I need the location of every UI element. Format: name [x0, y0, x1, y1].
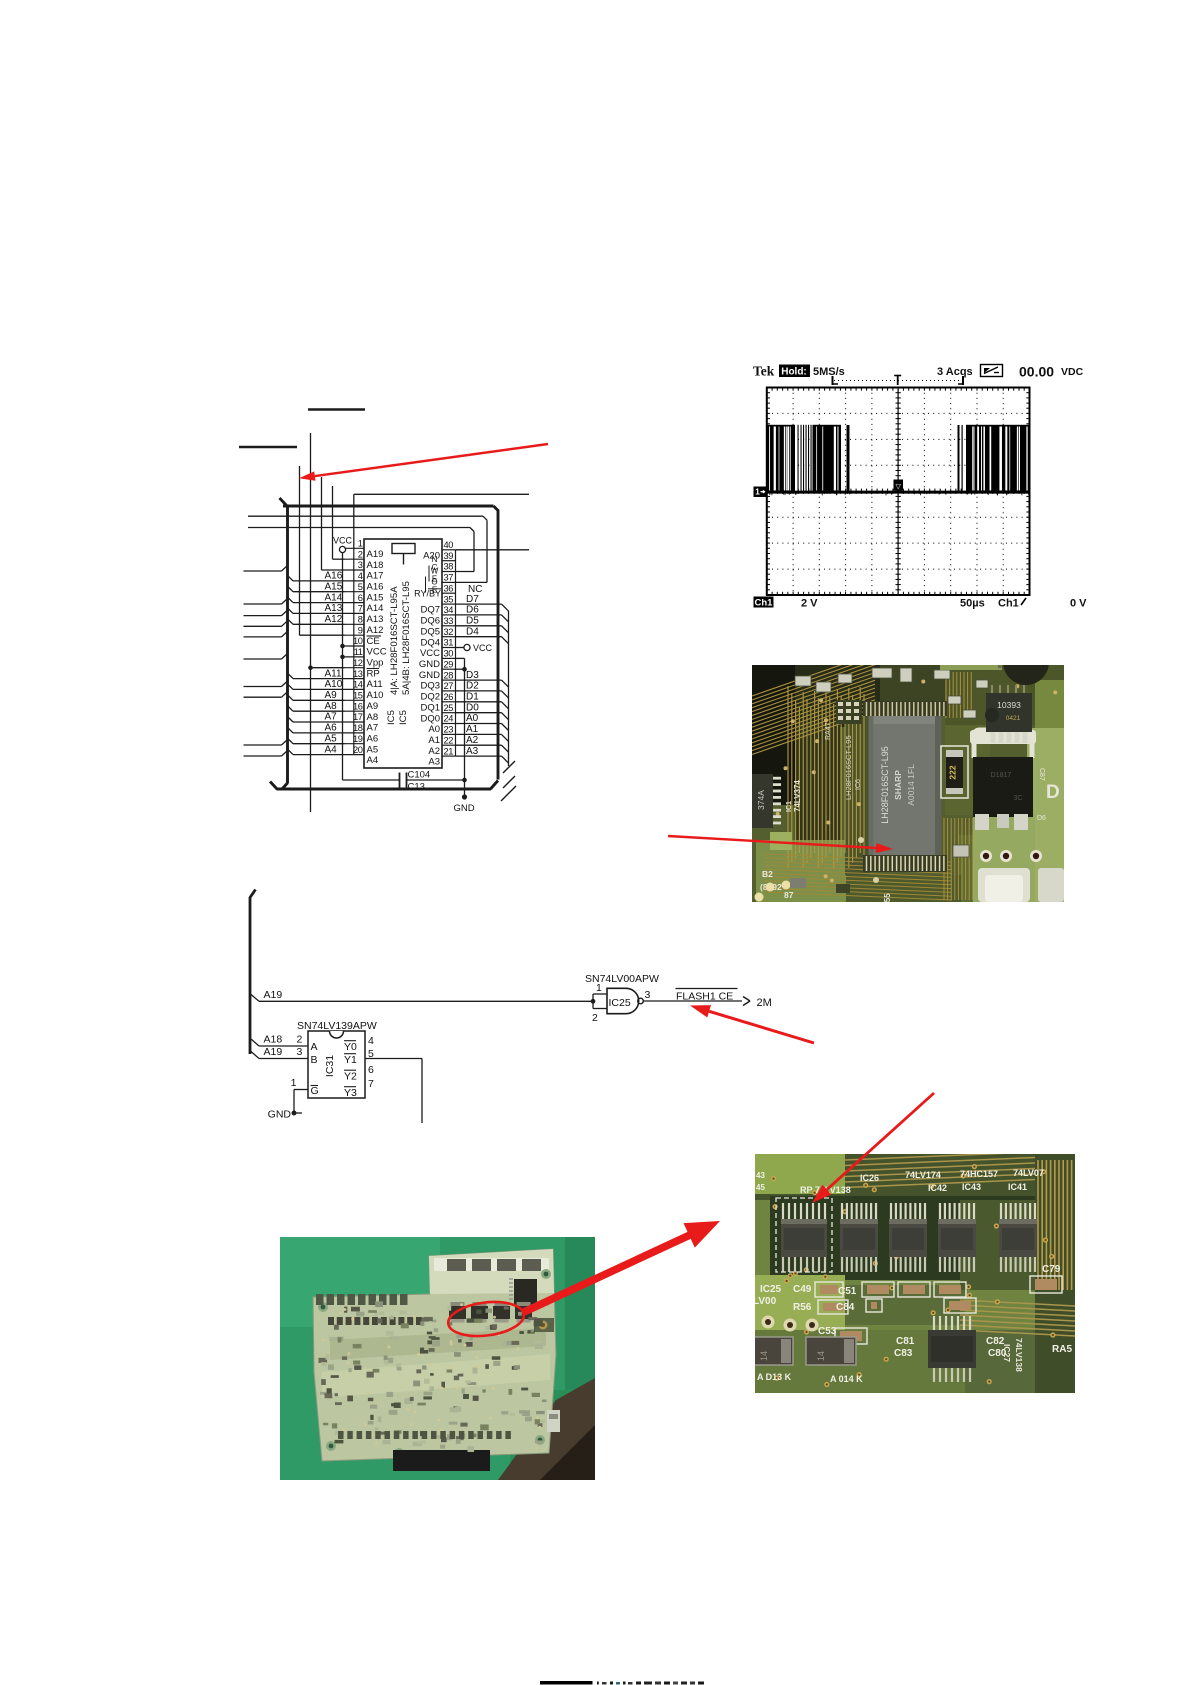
- svg-text:A9: A9: [325, 690, 338, 701]
- svg-text:4|A: LH28F016SCT-L95A: 4|A: LH28F016SCT-L95A: [389, 586, 400, 695]
- svg-text:VCC: VCC: [473, 643, 493, 653]
- svg-text:6: 6: [368, 1064, 374, 1076]
- svg-text:36: 36: [444, 583, 454, 593]
- svg-text:A19: A19: [264, 1046, 283, 1058]
- svg-text:74HC157: 74HC157: [960, 1169, 998, 1179]
- svg-text:IC5: IC5: [398, 710, 409, 725]
- svg-text:3: 3: [645, 989, 651, 1001]
- svg-text:D2: D2: [466, 681, 479, 692]
- svg-text:SN74LV00APW: SN74LV00APW: [585, 973, 659, 985]
- svg-text:CE: CE: [367, 636, 380, 647]
- svg-text:SN74LV139APW: SN74LV139APW: [297, 1020, 377, 1032]
- svg-text:LH28F016SCT-L95: LH28F016SCT-L95: [844, 735, 853, 800]
- svg-text:A D13 K: A D13 K: [757, 1372, 792, 1382]
- svg-text:3C: 3C: [1014, 795, 1023, 802]
- svg-text:IC27: IC27: [1002, 1344, 1012, 1362]
- svg-text:3: 3: [358, 560, 363, 570]
- svg-text:Vpp: Vpp: [367, 658, 384, 669]
- svg-text:A6: A6: [367, 734, 379, 745]
- svg-text:74LV374: 74LV374: [793, 780, 802, 812]
- svg-text:1: 1: [291, 1077, 297, 1089]
- svg-text:12: 12: [353, 658, 363, 668]
- svg-text:22: 22: [444, 735, 454, 745]
- svg-text:FLASH1 CE: FLASH1 CE: [676, 991, 733, 1003]
- svg-text:D5: D5: [466, 616, 479, 627]
- svg-text:17: 17: [353, 712, 363, 722]
- svg-text:Hold:: Hold:: [781, 367, 807, 378]
- svg-text:40: 40: [444, 540, 454, 550]
- svg-text:Ch1: Ch1: [755, 598, 774, 609]
- svg-text:A1: A1: [466, 724, 479, 735]
- svg-text:A12: A12: [325, 614, 343, 625]
- svg-text:GND: GND: [419, 659, 440, 670]
- svg-text:A0: A0: [466, 713, 479, 724]
- svg-text:00.00: 00.00: [1019, 364, 1054, 380]
- svg-text:IC31: IC31: [324, 1055, 336, 1077]
- svg-text:45: 45: [756, 1183, 765, 1192]
- svg-text:IC25: IC25: [760, 1284, 782, 1295]
- svg-text:A1: A1: [428, 735, 440, 746]
- svg-text:16: 16: [353, 701, 363, 711]
- svg-text:GND: GND: [419, 670, 440, 681]
- svg-text:74LV174: 74LV174: [905, 1170, 941, 1180]
- svg-text:5MS/s: 5MS/s: [813, 366, 845, 378]
- svg-text:Y3: Y3: [344, 1087, 357, 1099]
- svg-text:IC42: IC42: [928, 1183, 947, 1193]
- svg-text:14: 14: [353, 680, 363, 690]
- svg-text:A4: A4: [325, 744, 338, 755]
- svg-text:A14: A14: [367, 603, 384, 614]
- svg-text:A4: A4: [367, 755, 379, 766]
- svg-text:32: 32: [444, 627, 454, 637]
- svg-text:DQ3: DQ3: [420, 681, 440, 692]
- svg-text:▽: ▽: [896, 484, 902, 491]
- svg-text:A7: A7: [325, 712, 338, 723]
- svg-text:Y1: Y1: [344, 1054, 357, 1066]
- svg-text:A13: A13: [325, 603, 343, 614]
- svg-text:DQ4: DQ4: [420, 637, 440, 648]
- svg-text:74LV07: 74LV07: [1013, 1168, 1044, 1178]
- svg-text:43: 43: [756, 1171, 765, 1180]
- svg-text:14: 14: [816, 1351, 826, 1361]
- svg-text:1: 1: [755, 487, 760, 497]
- svg-text:IC1: IC1: [786, 801, 793, 812]
- svg-text:374A: 374A: [756, 790, 766, 810]
- svg-text:5A|4B: LH28F016SCT-L95: 5A|4B: LH28F016SCT-L95: [401, 581, 412, 695]
- svg-text:A2: A2: [466, 735, 479, 746]
- svg-text:24: 24: [444, 714, 454, 724]
- svg-text:A7: A7: [367, 723, 379, 734]
- svg-text:D6: D6: [466, 605, 479, 616]
- svg-text:3: 3: [297, 1046, 303, 1058]
- svg-text:RP: RP: [367, 668, 380, 679]
- svg-text:39: 39: [444, 551, 454, 561]
- svg-text:D1: D1: [466, 692, 479, 703]
- svg-text:A0: A0: [428, 724, 440, 735]
- svg-text:7: 7: [358, 604, 363, 614]
- svg-text:DQ1: DQ1: [420, 702, 440, 713]
- svg-text:A2: A2: [428, 746, 440, 757]
- svg-text:D6: D6: [1037, 815, 1046, 822]
- svg-text:C79: C79: [1042, 1264, 1061, 1275]
- svg-text:26: 26: [444, 692, 454, 702]
- svg-text:33: 33: [444, 616, 454, 626]
- svg-text:RY/BY: RY/BY: [414, 589, 441, 599]
- svg-text:4: 4: [368, 1035, 374, 1047]
- svg-text:23: 23: [444, 725, 454, 735]
- svg-text:10: 10: [353, 636, 363, 646]
- svg-text:DQ7: DQ7: [420, 605, 440, 616]
- svg-text:A19: A19: [367, 549, 384, 560]
- svg-text:A15: A15: [367, 592, 384, 603]
- svg-text:IC25: IC25: [609, 997, 631, 1009]
- svg-text:A3: A3: [428, 757, 440, 768]
- svg-text:29: 29: [444, 659, 454, 669]
- svg-text:IC43: IC43: [962, 1182, 981, 1192]
- svg-text:0 V: 0 V: [1070, 598, 1087, 610]
- svg-text:A 014 K: A 014 K: [830, 1374, 863, 1384]
- svg-text:A9: A9: [367, 701, 379, 712]
- svg-text:Y2: Y2: [344, 1071, 357, 1083]
- svg-text:C53: C53: [818, 1326, 837, 1337]
- svg-text:GND: GND: [268, 1109, 292, 1121]
- svg-text:VDC: VDC: [1061, 366, 1084, 378]
- svg-text:LV00: LV00: [753, 1296, 777, 1307]
- svg-text:DQ0: DQ0: [420, 713, 440, 724]
- svg-text:A14: A14: [325, 592, 343, 603]
- svg-text:B: B: [311, 1054, 318, 1066]
- svg-text:222: 222: [948, 765, 958, 779]
- svg-text:A18: A18: [367, 560, 384, 571]
- svg-text:C49: C49: [793, 1284, 812, 1295]
- svg-text:6: 6: [358, 593, 363, 603]
- svg-text:A13: A13: [367, 614, 384, 625]
- svg-text:A10: A10: [325, 679, 343, 690]
- svg-text:B2: B2: [762, 869, 773, 879]
- svg-text:A: A: [311, 1041, 318, 1053]
- svg-text:A16: A16: [367, 582, 384, 593]
- svg-text:20: 20: [353, 745, 363, 755]
- svg-text:D: D: [1046, 782, 1060, 803]
- svg-text:Y0: Y0: [344, 1041, 357, 1053]
- svg-text:35: 35: [444, 594, 454, 604]
- svg-text:34: 34: [444, 605, 454, 615]
- svg-text:RA5: RA5: [1052, 1344, 1072, 1355]
- svg-text:C83: C83: [894, 1348, 913, 1359]
- svg-text:IC26: IC26: [860, 1173, 879, 1183]
- svg-text:A11: A11: [325, 668, 342, 679]
- svg-text:10393: 10393: [997, 700, 1021, 710]
- svg-text:19: 19: [353, 734, 363, 744]
- svg-text:25: 25: [444, 703, 454, 713]
- svg-text:A11: A11: [367, 679, 383, 690]
- svg-text:27: 27: [444, 681, 454, 691]
- svg-text:C81: C81: [896, 1336, 915, 1347]
- svg-text:15: 15: [353, 691, 363, 701]
- svg-text:A17: A17: [367, 571, 384, 582]
- svg-text:A5: A5: [367, 744, 379, 755]
- svg-text:VCC: VCC: [333, 536, 353, 546]
- svg-text:A5: A5: [325, 733, 338, 744]
- svg-text:C13: C13: [408, 782, 425, 793]
- svg-text:38: 38: [444, 562, 454, 572]
- svg-text:RA47: RA47: [825, 722, 832, 740]
- svg-text:IC5: IC5: [386, 710, 397, 725]
- svg-text:37: 37: [444, 573, 454, 583]
- svg-text:D0: D0: [466, 702, 479, 713]
- svg-text:0421: 0421: [1006, 715, 1021, 722]
- svg-text:G: G: [311, 1085, 319, 1097]
- svg-text:5: 5: [358, 582, 363, 592]
- svg-text:C51: C51: [838, 1286, 857, 1297]
- svg-text:A18: A18: [264, 1034, 283, 1046]
- svg-text:2 V: 2 V: [801, 598, 818, 610]
- svg-text:IC41: IC41: [1008, 1182, 1027, 1192]
- svg-text:8: 8: [358, 615, 363, 625]
- svg-text:D4: D4: [466, 626, 479, 637]
- svg-text:A16: A16: [325, 571, 343, 582]
- svg-text:2M: 2M: [757, 997, 772, 1009]
- svg-text:Ch1: Ch1: [998, 598, 1019, 610]
- svg-text:A12: A12: [367, 625, 384, 636]
- svg-text:3 Acqs: 3 Acqs: [937, 366, 973, 378]
- svg-text:18: 18: [353, 723, 363, 733]
- svg-text:C55: C55: [883, 893, 892, 908]
- svg-text:D3: D3: [466, 670, 479, 681]
- svg-text:C87: C87: [1038, 768, 1045, 781]
- svg-text:2: 2: [592, 1012, 598, 1024]
- svg-text:50µs: 50µs: [960, 598, 985, 610]
- svg-text:GND: GND: [453, 803, 474, 814]
- svg-text:11: 11: [354, 647, 363, 657]
- svg-text:DQ5: DQ5: [420, 626, 440, 637]
- svg-text:7: 7: [368, 1078, 374, 1090]
- svg-text:VCC: VCC: [367, 647, 387, 658]
- svg-text:A0014 1FL: A0014 1FL: [906, 764, 916, 806]
- svg-text:DQ6: DQ6: [420, 616, 440, 627]
- svg-text:LH28F016SCT-L95: LH28F016SCT-L95: [880, 746, 890, 824]
- svg-text:1: 1: [358, 539, 363, 549]
- svg-text:C84: C84: [836, 1302, 855, 1313]
- svg-text:A19: A19: [264, 989, 283, 1001]
- svg-text:2: 2: [358, 549, 363, 559]
- svg-text:Tek: Tek: [753, 364, 775, 379]
- svg-text:28: 28: [444, 670, 454, 680]
- svg-text:87: 87: [784, 890, 794, 900]
- svg-text:21: 21: [444, 746, 454, 756]
- svg-text:4: 4: [358, 571, 363, 581]
- svg-text:SHARP: SHARP: [893, 770, 903, 800]
- svg-text:C104: C104: [408, 770, 431, 781]
- svg-text:DQ2: DQ2: [420, 692, 440, 703]
- svg-text:R56: R56: [793, 1302, 812, 1313]
- svg-text:30: 30: [444, 649, 454, 659]
- svg-text:NC: NC: [468, 584, 482, 595]
- svg-text:13: 13: [353, 669, 363, 679]
- svg-text:A3: A3: [466, 746, 479, 757]
- svg-text:A8: A8: [325, 701, 338, 712]
- svg-text:14: 14: [759, 1351, 769, 1361]
- svg-text:A6: A6: [325, 723, 338, 734]
- svg-text:D1817: D1817: [991, 772, 1012, 779]
- svg-text:A10: A10: [367, 690, 384, 701]
- svg-text:A8: A8: [367, 712, 379, 723]
- svg-text:9: 9: [358, 625, 363, 635]
- svg-text:74LV138: 74LV138: [1014, 1338, 1024, 1372]
- svg-text:A15: A15: [325, 581, 343, 592]
- svg-text:2: 2: [297, 1034, 303, 1046]
- svg-text:31: 31: [444, 638, 454, 648]
- svg-text:IC6: IC6: [855, 779, 862, 790]
- svg-text:C82: C82: [986, 1336, 1005, 1347]
- svg-text:VCC: VCC: [420, 648, 440, 659]
- svg-text:D7: D7: [466, 594, 479, 605]
